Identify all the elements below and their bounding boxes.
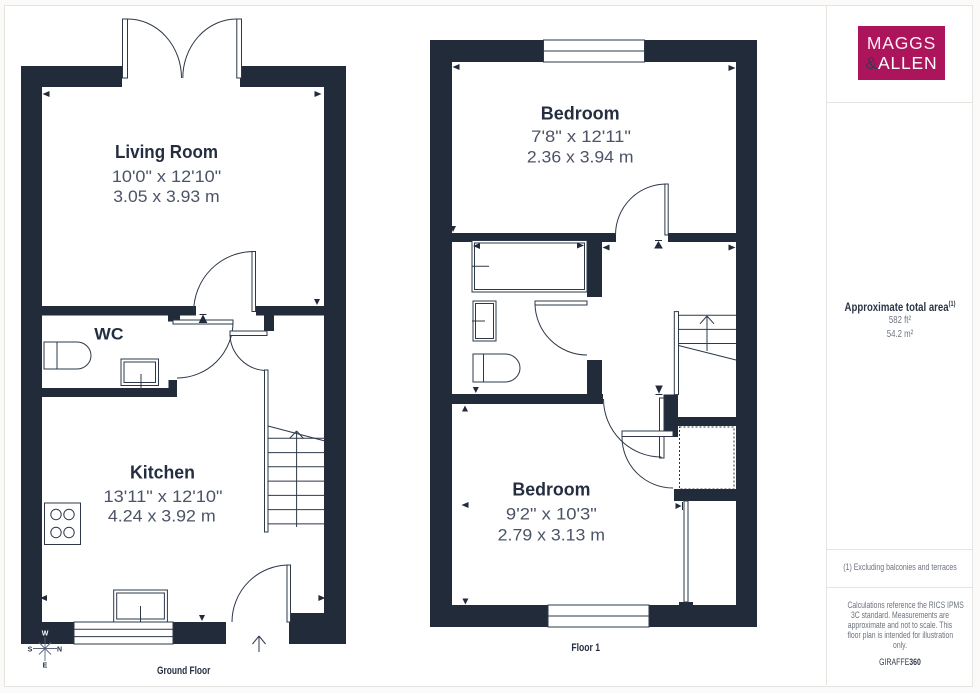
- svg-text:W: W: [42, 631, 49, 638]
- svg-text:WC: WC: [94, 325, 123, 344]
- svg-text:7'8" x 12'11": 7'8" x 12'11": [531, 127, 631, 146]
- svg-text:3.05 x 3.93 m: 3.05 x 3.93 m: [113, 187, 219, 206]
- svg-text:2.79 x 3.13 m: 2.79 x 3.13 m: [498, 526, 605, 545]
- svg-text:4.24 x 3.92 m: 4.24 x 3.92 m: [108, 507, 216, 526]
- svg-text:Ground Floor: Ground Floor: [157, 665, 211, 677]
- svg-text:S: S: [28, 647, 33, 654]
- svg-text:2.36 x 3.94 m: 2.36 x 3.94 m: [527, 148, 634, 167]
- svg-text:N: N: [57, 647, 62, 654]
- svg-text:Bedroom: Bedroom: [512, 480, 590, 500]
- svg-text:10'0" x 12'10": 10'0" x 12'10": [112, 167, 221, 186]
- svg-text:Kitchen: Kitchen: [130, 463, 195, 483]
- svg-text:Bedroom: Bedroom: [541, 103, 620, 123]
- svg-text:9'2" x 10'3": 9'2" x 10'3": [506, 505, 597, 524]
- svg-text:Living Room: Living Room: [115, 142, 218, 162]
- svg-text:13'11" x 12'10": 13'11" x 12'10": [104, 487, 223, 506]
- svg-text:E: E: [43, 663, 48, 670]
- svg-text:Floor 1: Floor 1: [571, 642, 600, 654]
